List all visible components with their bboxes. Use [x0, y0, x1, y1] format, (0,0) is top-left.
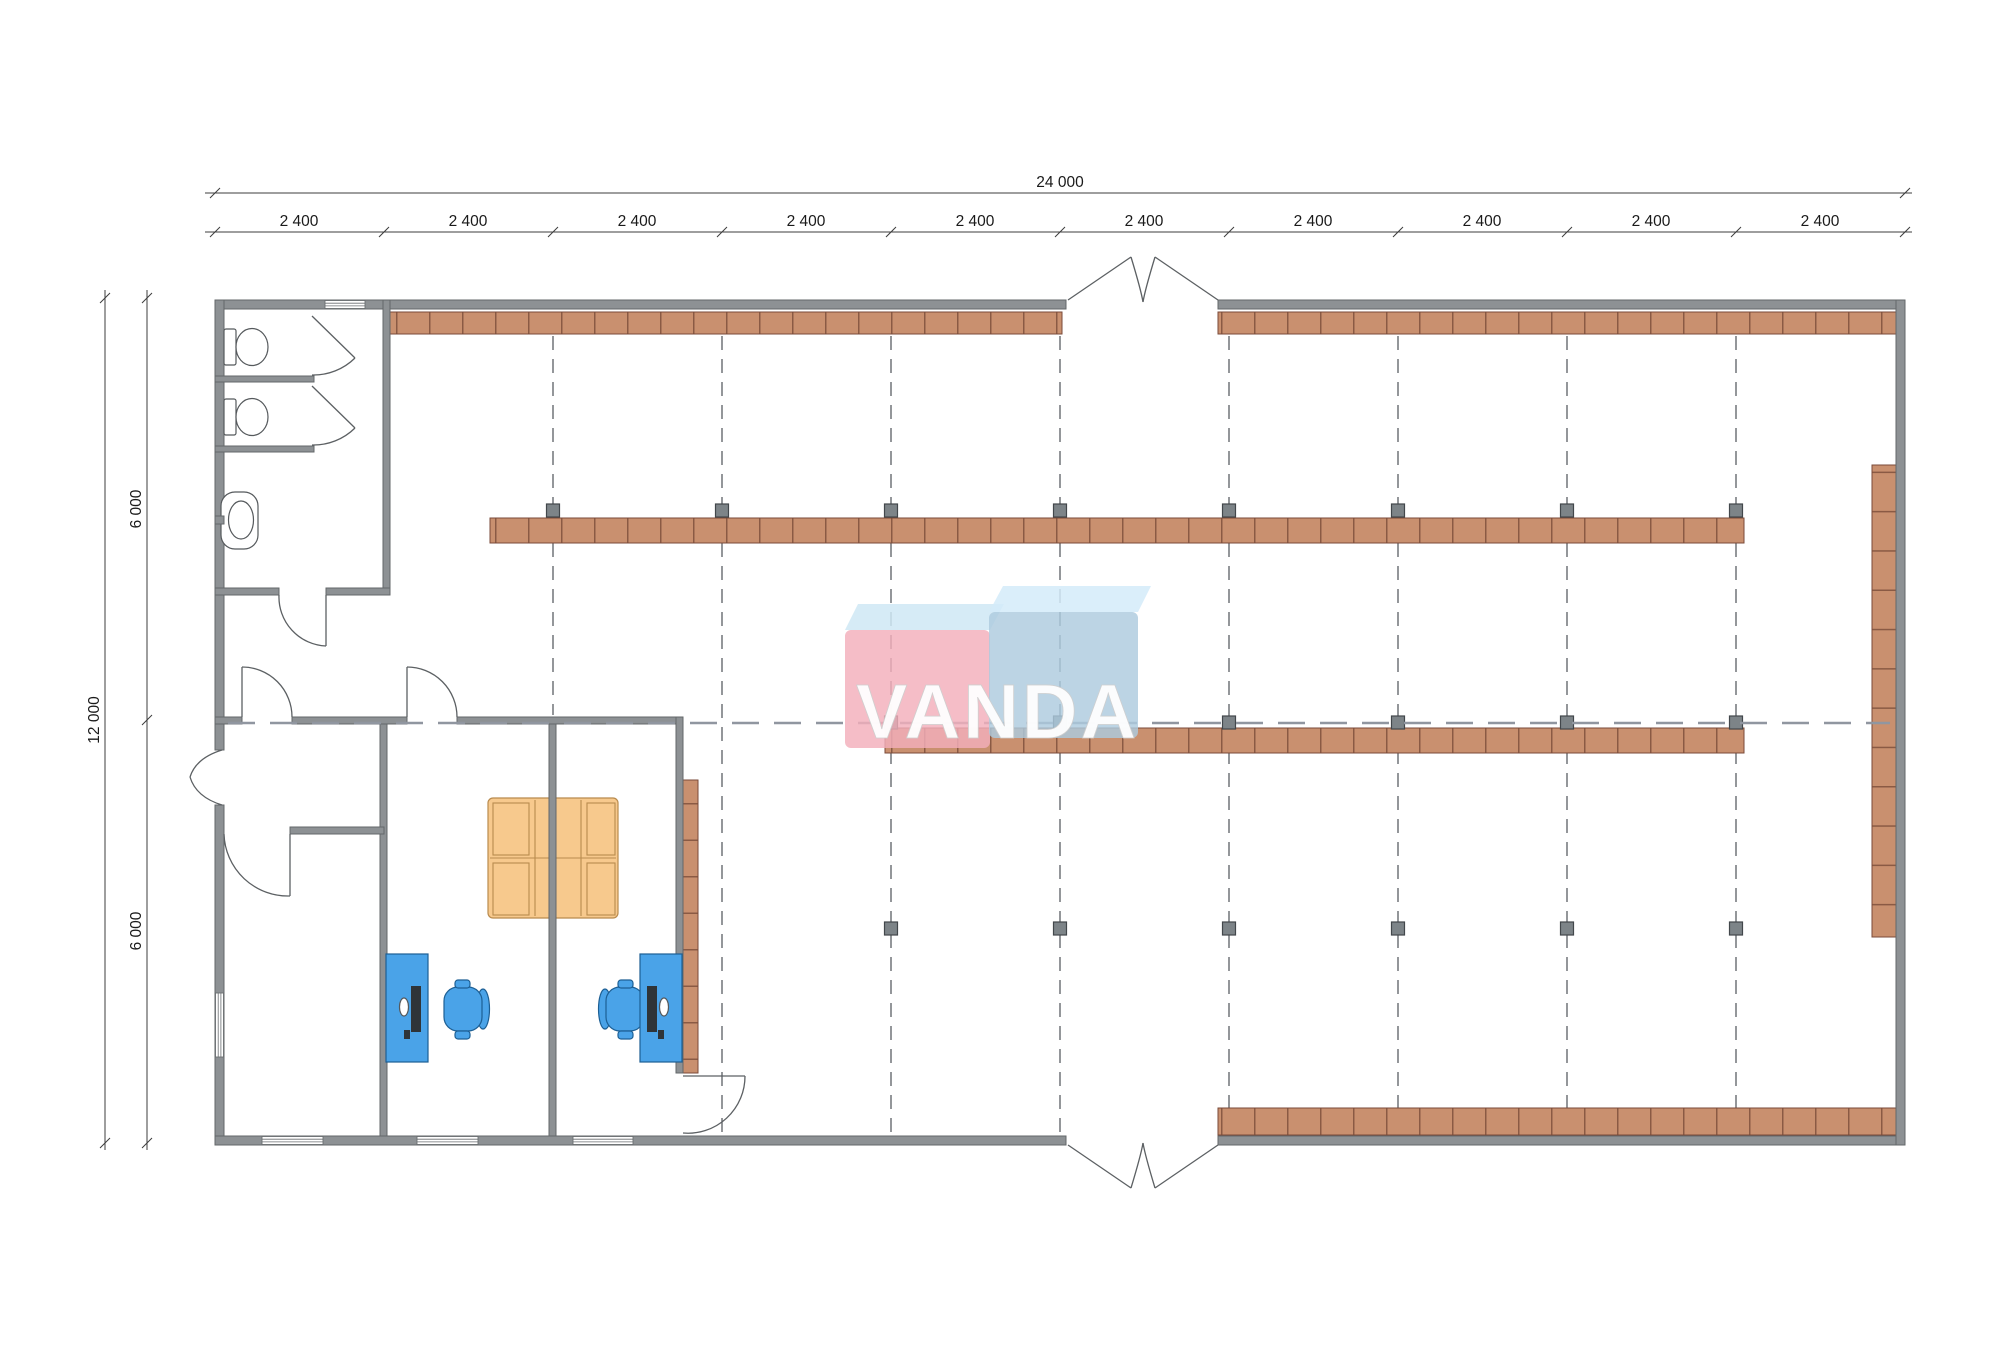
- left-dimension-lines: 12 000 6 000 6 000: [86, 290, 152, 1150]
- door-stall-2: [312, 386, 355, 445]
- dim-bay: 2 400: [618, 213, 657, 230]
- column-marker: [1392, 716, 1405, 729]
- shelf-office-wall: [683, 780, 698, 1073]
- column-marker: [547, 504, 560, 517]
- column-marker: [716, 504, 729, 517]
- shelf-row-second: [490, 518, 1744, 543]
- wall-bottom-left: [215, 1136, 1066, 1145]
- entrance-double-door-top: [1068, 257, 1218, 302]
- dim-bay: 2 400: [1125, 213, 1164, 230]
- column-marker: [1730, 922, 1743, 935]
- door-restroom: [279, 595, 326, 646]
- dim-bay: 2 400: [280, 213, 319, 230]
- office-chair: [444, 980, 490, 1039]
- desk: [640, 954, 682, 1062]
- dim-bay: 2 400: [956, 213, 995, 230]
- dim-half-height: 6 000: [128, 911, 145, 950]
- floor-plan-canvas: VANDA 24 000 2 400 2 400 2 400 2 400 2 4…: [0, 0, 2000, 1358]
- wall-partition-1: [380, 724, 387, 1136]
- dim-total-width: 24 000: [1036, 174, 1084, 191]
- wall-stall-divider-1: [215, 376, 314, 382]
- dim-bay: 2 400: [787, 213, 826, 230]
- columns: [547, 504, 1743, 935]
- wall-entry-room: [290, 827, 384, 834]
- door-office-to-hall: [683, 1076, 745, 1133]
- column-marker: [1054, 504, 1067, 517]
- sink-icon: [215, 492, 258, 549]
- column-marker: [1392, 504, 1405, 517]
- window-bottom-3: [573, 1137, 633, 1145]
- watermark-blue-flap: [989, 586, 1151, 612]
- shelf-row-top-right: [1218, 312, 1896, 334]
- grid-lines: [553, 313, 1736, 1133]
- wall-restroom-bottom-b: [326, 588, 390, 595]
- floor-plan-page: { "watermark": { "text": "VANDA", "pink"…: [0, 0, 2000, 1358]
- shelf-right-wall: [1872, 465, 1896, 937]
- column-marker: [1223, 504, 1236, 517]
- dim-bay: 2 400: [1463, 213, 1502, 230]
- wall-stall-divider-2: [215, 446, 314, 452]
- door-entry-room: [224, 834, 290, 896]
- office-chair: [599, 980, 645, 1039]
- wall-left-lower: [215, 805, 224, 1136]
- column-marker: [1730, 504, 1743, 517]
- wall-restroom-right: [383, 300, 390, 595]
- column-marker: [1561, 922, 1574, 935]
- wall-top-right: [1218, 300, 1905, 309]
- dim-half-height: 6 000: [128, 489, 145, 528]
- wall-mid-b: [292, 717, 407, 724]
- column-marker: [885, 922, 898, 935]
- column-marker: [1054, 922, 1067, 935]
- door-swing-mid-a: [242, 667, 292, 717]
- wall-bottom-right: [1218, 1136, 1905, 1145]
- dim-bay: 2 400: [1801, 213, 1840, 230]
- watermark-logo-text: VANDA: [856, 669, 1139, 755]
- toilet-icon: [224, 399, 268, 436]
- window-bottom-1: [262, 1137, 323, 1145]
- wall-restroom-bottom-a: [215, 588, 279, 595]
- window-left: [216, 993, 224, 1057]
- window-top: [325, 301, 365, 309]
- desk: [386, 954, 428, 1062]
- door-swing-mid-b: [407, 667, 457, 717]
- column-marker: [1561, 504, 1574, 517]
- office-furniture: [386, 954, 682, 1062]
- shelf-row-bottom: [1218, 1108, 1896, 1135]
- shelf-row-top-left: [390, 312, 1062, 334]
- wall-partition-2: [549, 724, 556, 1136]
- column-marker: [885, 504, 898, 517]
- dim-bay: 2 400: [449, 213, 488, 230]
- column-marker: [1392, 922, 1405, 935]
- door-left-double: [190, 750, 222, 805]
- wall-right: [1896, 300, 1905, 1145]
- entrance-double-door-bottom: [1068, 1143, 1218, 1188]
- dim-bay: 2 400: [1294, 213, 1333, 230]
- vanda-watermark: VANDA: [845, 586, 1151, 755]
- dim-bay: 2 400: [1632, 213, 1671, 230]
- toilet-icon: [224, 329, 268, 366]
- column-marker: [1223, 922, 1236, 935]
- dim-total-height: 12 000: [86, 696, 103, 744]
- door-stall-1: [312, 316, 355, 375]
- watermark-pink-flap: [845, 604, 1004, 630]
- top-dimension-lines: 24 000 2 400 2 400 2 400 2 400 2 400 2 4…: [205, 174, 1912, 237]
- column-marker: [1561, 716, 1574, 729]
- window-bottom-2: [417, 1137, 478, 1145]
- column-marker: [1223, 716, 1236, 729]
